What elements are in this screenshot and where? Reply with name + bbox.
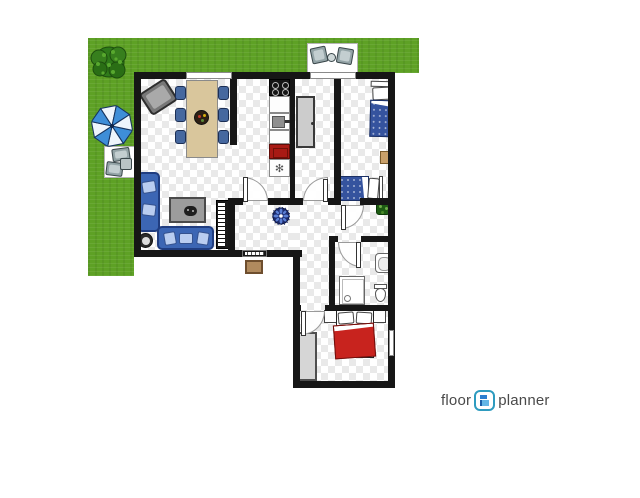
patio-top-deck [307, 43, 358, 73]
dining-chair-icon [218, 108, 229, 122]
dining-chair-icon [218, 130, 229, 144]
tree-icon [86, 40, 132, 86]
wall-kitchen-divider [290, 72, 295, 202]
fridge-icon: ✻ [269, 159, 290, 177]
wall-bath-north [329, 236, 338, 242]
wall-west [134, 72, 141, 257]
wall-bedroom-divider [334, 72, 341, 205]
wall-hall-north [360, 198, 395, 205]
door-leaf [356, 242, 361, 268]
window-north-terrace [310, 72, 356, 79]
door-leaf [243, 177, 248, 202]
kitchen-sink-icon [269, 113, 290, 130]
sofa-cushion [179, 233, 193, 244]
coffee-table-icon [169, 197, 206, 223]
nightstand-icon [373, 310, 386, 323]
bed-pillow [367, 178, 380, 200]
wall-bath-north [361, 236, 395, 242]
watermark-text-planner: planner [498, 392, 549, 409]
stove-icon [269, 79, 290, 96]
window-master-east [389, 330, 394, 356]
doormat-icon [245, 260, 263, 274]
wall-master-west [293, 305, 300, 388]
dining-chair-icon [175, 86, 186, 100]
sofa-pillow [141, 203, 156, 217]
kitchen-counter [269, 130, 290, 144]
sofa-pillow [196, 231, 210, 246]
sofa-pillow [163, 231, 177, 246]
oven-icon [269, 144, 290, 159]
parasol-icon [87, 101, 137, 151]
patio-table-icon [327, 53, 336, 62]
wall-hall-north [268, 198, 303, 205]
watermark-text-floor: floor [441, 392, 471, 409]
table-centerpiece-icon [194, 110, 209, 125]
wall-master-north [293, 305, 301, 311]
door-leaf [301, 311, 306, 336]
wall-piano [228, 198, 235, 257]
bed-pillow [338, 311, 355, 324]
wardrobe-icon [297, 332, 317, 381]
dining-chair-icon [175, 130, 186, 144]
wall-master-north [325, 305, 395, 311]
ceiling-fan-icon [272, 207, 290, 225]
piano-keys [218, 202, 225, 247]
fridge-fan-glyph: ✻ [275, 162, 284, 175]
patio-chair-icon [310, 46, 329, 65]
wall-corridor-west [293, 250, 300, 311]
entrance-door-sill [242, 250, 267, 257]
wall-dining-divider [230, 72, 237, 145]
armchair-seat [145, 85, 171, 110]
wall-bath-west [329, 236, 335, 311]
kitchen-counter [269, 96, 290, 113]
wall-east [388, 72, 395, 311]
bed-blanket-red [333, 323, 376, 360]
floorplanner-logo-icon [474, 390, 495, 411]
dining-chair-icon [218, 86, 229, 100]
garden-grass-top [88, 38, 419, 73]
window-north-dining [186, 72, 232, 79]
shower-icon [339, 276, 365, 305]
door-leaf [323, 179, 328, 202]
cabinet-icon [296, 96, 315, 148]
coffee-table-decor [184, 206, 197, 216]
wall-master-south [293, 381, 395, 388]
patio-table-icon [120, 158, 132, 170]
floorplanner-watermark: floor planner [441, 390, 550, 411]
patio-left-deck [104, 146, 135, 178]
floorplan-canvas: ✻ [0, 0, 640, 498]
sofa-horizontal [157, 226, 214, 250]
sofa-pillow [141, 180, 157, 194]
dining-chair-icon [175, 108, 186, 122]
wall-south-living [134, 250, 302, 257]
patio-chair-icon [336, 47, 355, 66]
door-leaf [341, 205, 346, 230]
